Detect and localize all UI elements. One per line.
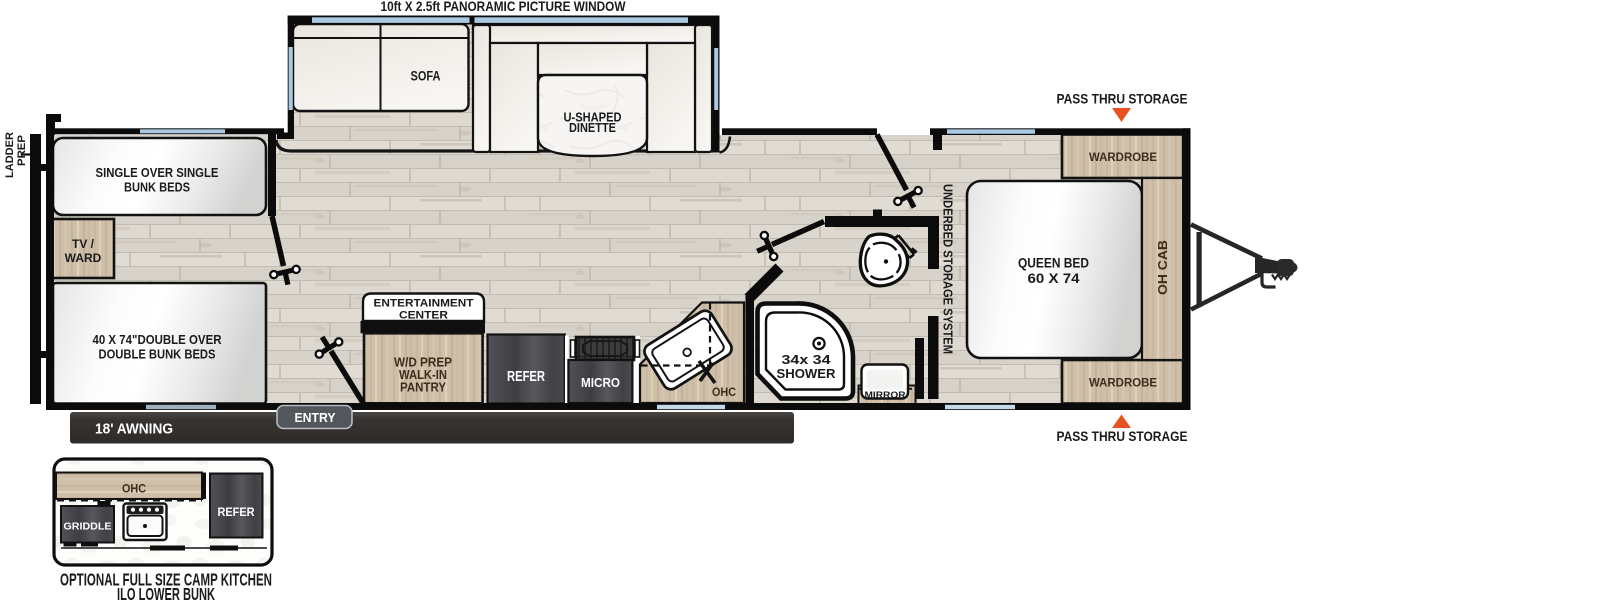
svg-text:MICRO: MICRO bbox=[581, 376, 620, 390]
svg-text:WARD: WARD bbox=[65, 251, 102, 265]
svg-text:SOFA: SOFA bbox=[411, 69, 441, 84]
svg-text:CENTER: CENTER bbox=[399, 310, 448, 322]
svg-text:SINGLE OVER SINGLE: SINGLE OVER SINGLE bbox=[96, 165, 219, 180]
svg-text:WARDROBE: WARDROBE bbox=[1089, 150, 1157, 164]
svg-text:OHC: OHC bbox=[122, 484, 146, 496]
svg-text:SHOWER: SHOWER bbox=[777, 366, 837, 381]
svg-text:GRIDDLE: GRIDDLE bbox=[64, 521, 112, 533]
svg-text:REFER: REFER bbox=[507, 369, 545, 385]
svg-text:DOUBLE BUNK BEDS: DOUBLE BUNK BEDS bbox=[99, 347, 216, 362]
svg-text:DINETTE: DINETTE bbox=[569, 121, 616, 135]
svg-text:ENTERTAINMENT: ENTERTAINMENT bbox=[374, 298, 474, 310]
svg-text:MIRROR: MIRROR bbox=[865, 390, 907, 400]
svg-text:LADDER: LADDER bbox=[4, 132, 16, 178]
svg-text:18' AWNING: 18' AWNING bbox=[95, 422, 173, 438]
svg-text:10ft X 2.5ft PANORAMIC PICTURE: 10ft X 2.5ft PANORAMIC PICTURE WINDOW bbox=[381, 0, 627, 14]
svg-text:ENTRY: ENTRY bbox=[295, 410, 336, 425]
svg-text:TV /: TV / bbox=[72, 237, 95, 251]
svg-text:REFER: REFER bbox=[218, 507, 256, 519]
svg-text:BUNK BEDS: BUNK BEDS bbox=[124, 180, 190, 195]
svg-text:ILO LOWER BUNK: ILO LOWER BUNK bbox=[117, 584, 215, 600]
svg-text:WARDROBE: WARDROBE bbox=[1089, 376, 1157, 390]
svg-text:PASS THRU STORAGE: PASS THRU STORAGE bbox=[1057, 428, 1188, 444]
svg-text:OHC: OHC bbox=[712, 385, 736, 399]
svg-text:PASS THRU STORAGE: PASS THRU STORAGE bbox=[1057, 91, 1188, 107]
svg-text:OH CAB: OH CAB bbox=[1155, 240, 1170, 295]
svg-text:60 X 74: 60 X 74 bbox=[1028, 270, 1080, 286]
svg-text:QUEEN BED: QUEEN BED bbox=[1018, 255, 1089, 271]
svg-text:PANTRY: PANTRY bbox=[400, 380, 446, 395]
svg-text:34x 34: 34x 34 bbox=[782, 352, 832, 367]
svg-text:PREP: PREP bbox=[16, 135, 28, 166]
svg-text:UNDERBED STORAGE SYSTEM: UNDERBED STORAGE SYSTEM bbox=[941, 184, 955, 354]
svg-text:40 X 74"DOUBLE OVER: 40 X 74"DOUBLE OVER bbox=[93, 332, 223, 347]
